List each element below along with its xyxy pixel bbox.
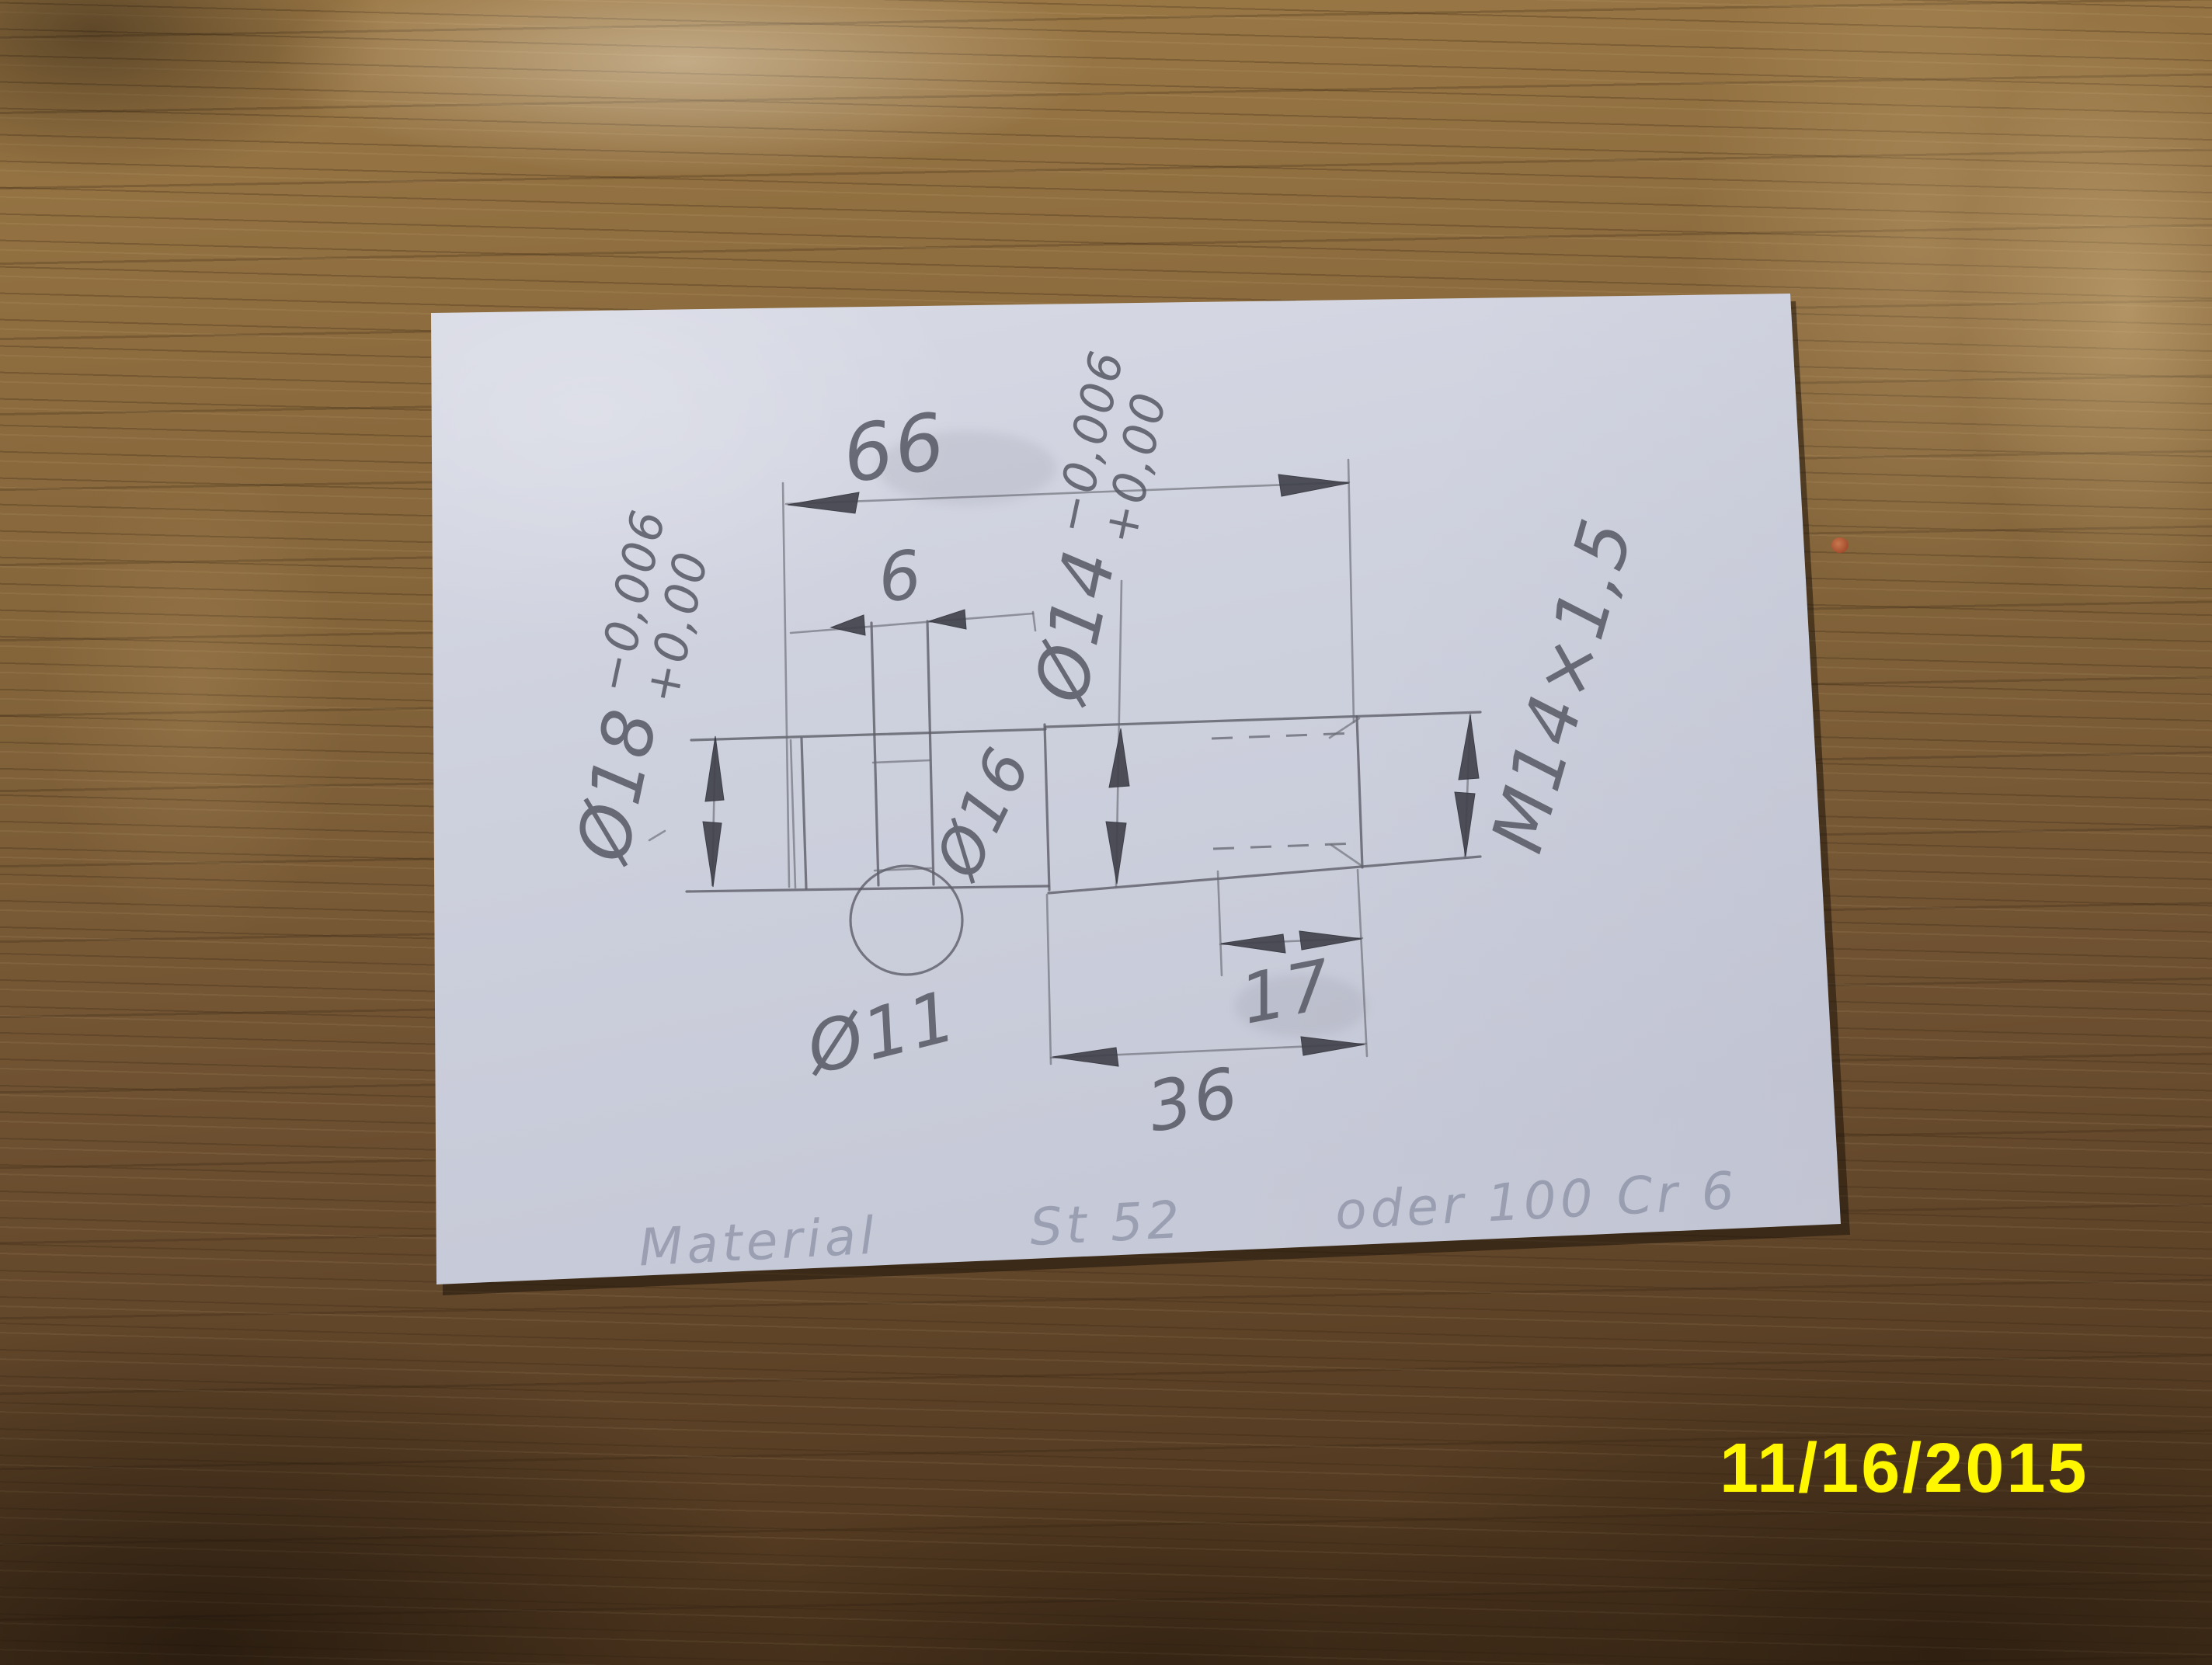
outline-right-section <box>1045 712 1480 893</box>
pencil-drawing <box>0 0 2212 1665</box>
material-note-word1: Material <box>637 1206 879 1278</box>
dim-66-label: 66 <box>836 395 953 501</box>
dim-dia18-lines <box>703 736 724 887</box>
photo-scene: 66 6 Ø18 −0,006 +0,00 Ø14 −0,006 +0,00 Ø… <box>0 0 2212 1665</box>
groove-lines <box>871 621 934 885</box>
camera-timestamp: 11/16/2015 <box>1720 1429 2089 1509</box>
material-note-word2: St 52 <box>1028 1190 1184 1257</box>
dia11-hole-circle <box>850 866 962 975</box>
dim-6-label: 6 <box>874 536 927 618</box>
